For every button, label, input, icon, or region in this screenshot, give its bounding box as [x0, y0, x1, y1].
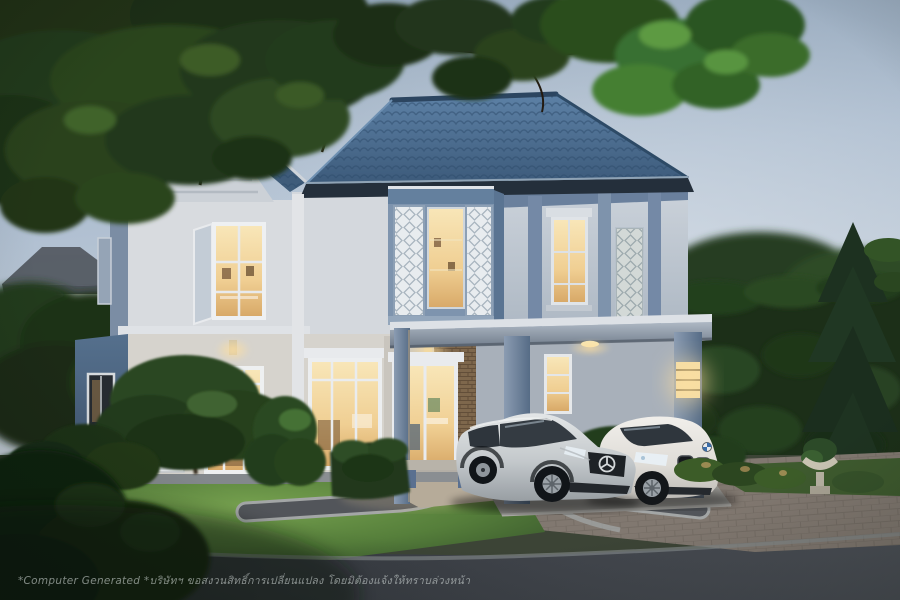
rendering-scene: *Computer Generated *บริษัทฯ ขอสงวนสิทธิ… — [0, 0, 900, 600]
disclaimer-caption: *Computer Generated *บริษัทฯ ขอสงวนสิทธิ… — [18, 572, 470, 589]
rendering-canvas — [0, 0, 900, 600]
